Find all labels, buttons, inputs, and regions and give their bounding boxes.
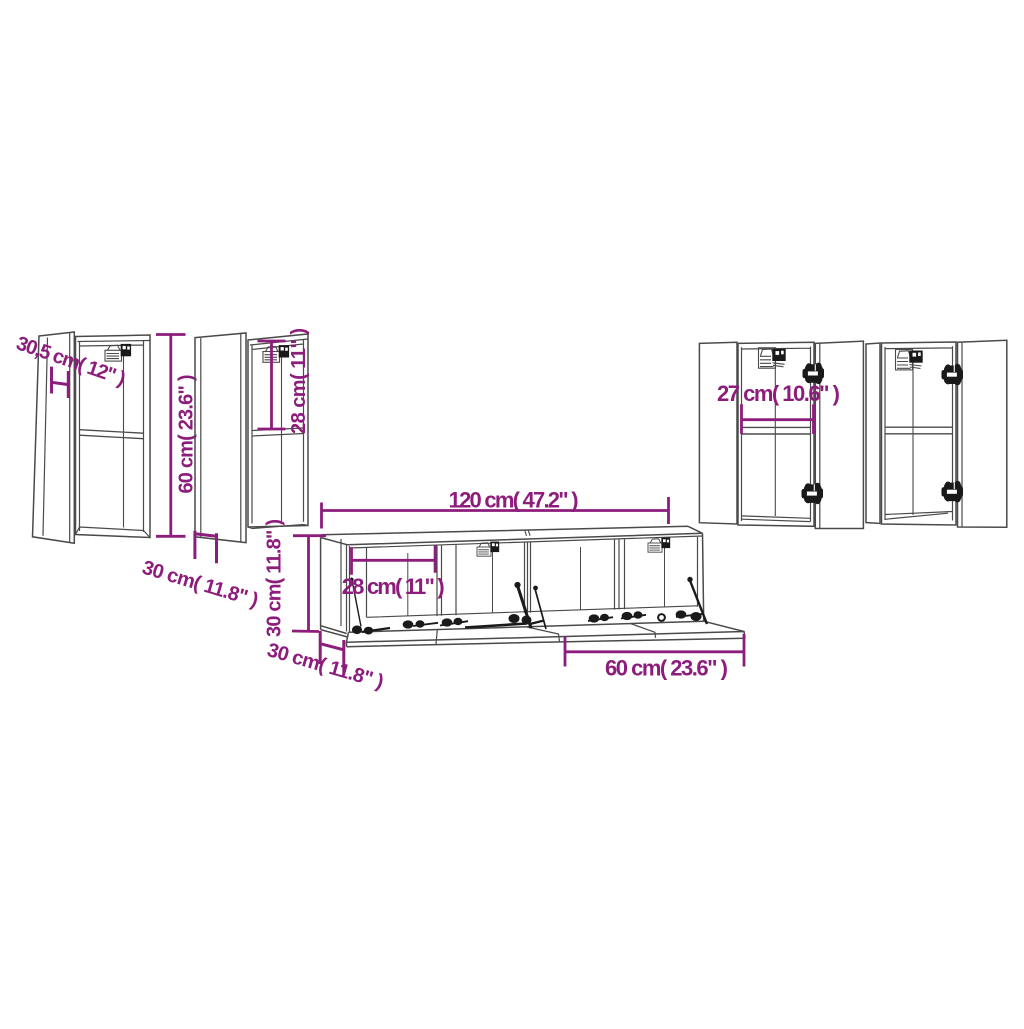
svg-text:28 cm( 11" ): 28 cm( 11" ) [288, 328, 310, 434]
svg-text:28 cm( 11" ): 28 cm( 11" ) [342, 574, 445, 599]
svg-text:27 cm( 10.6" ): 27 cm( 10.6" ) [717, 381, 840, 406]
svg-text:30 cm( 11.8" ): 30 cm( 11.8" ) [264, 519, 286, 637]
svg-text:60 cm( 23.6" ): 60 cm( 23.6" ) [605, 656, 728, 681]
svg-text:30 cm( 11.8" ): 30 cm( 11.8" ) [265, 639, 386, 693]
svg-text:30 cm( 11.8" ): 30 cm( 11.8" ) [140, 557, 261, 612]
svg-text:60 cm( 23.6" ): 60 cm( 23.6" ) [176, 375, 198, 494]
svg-text:120 cm( 47.2" ): 120 cm( 47.2" ) [449, 487, 579, 512]
